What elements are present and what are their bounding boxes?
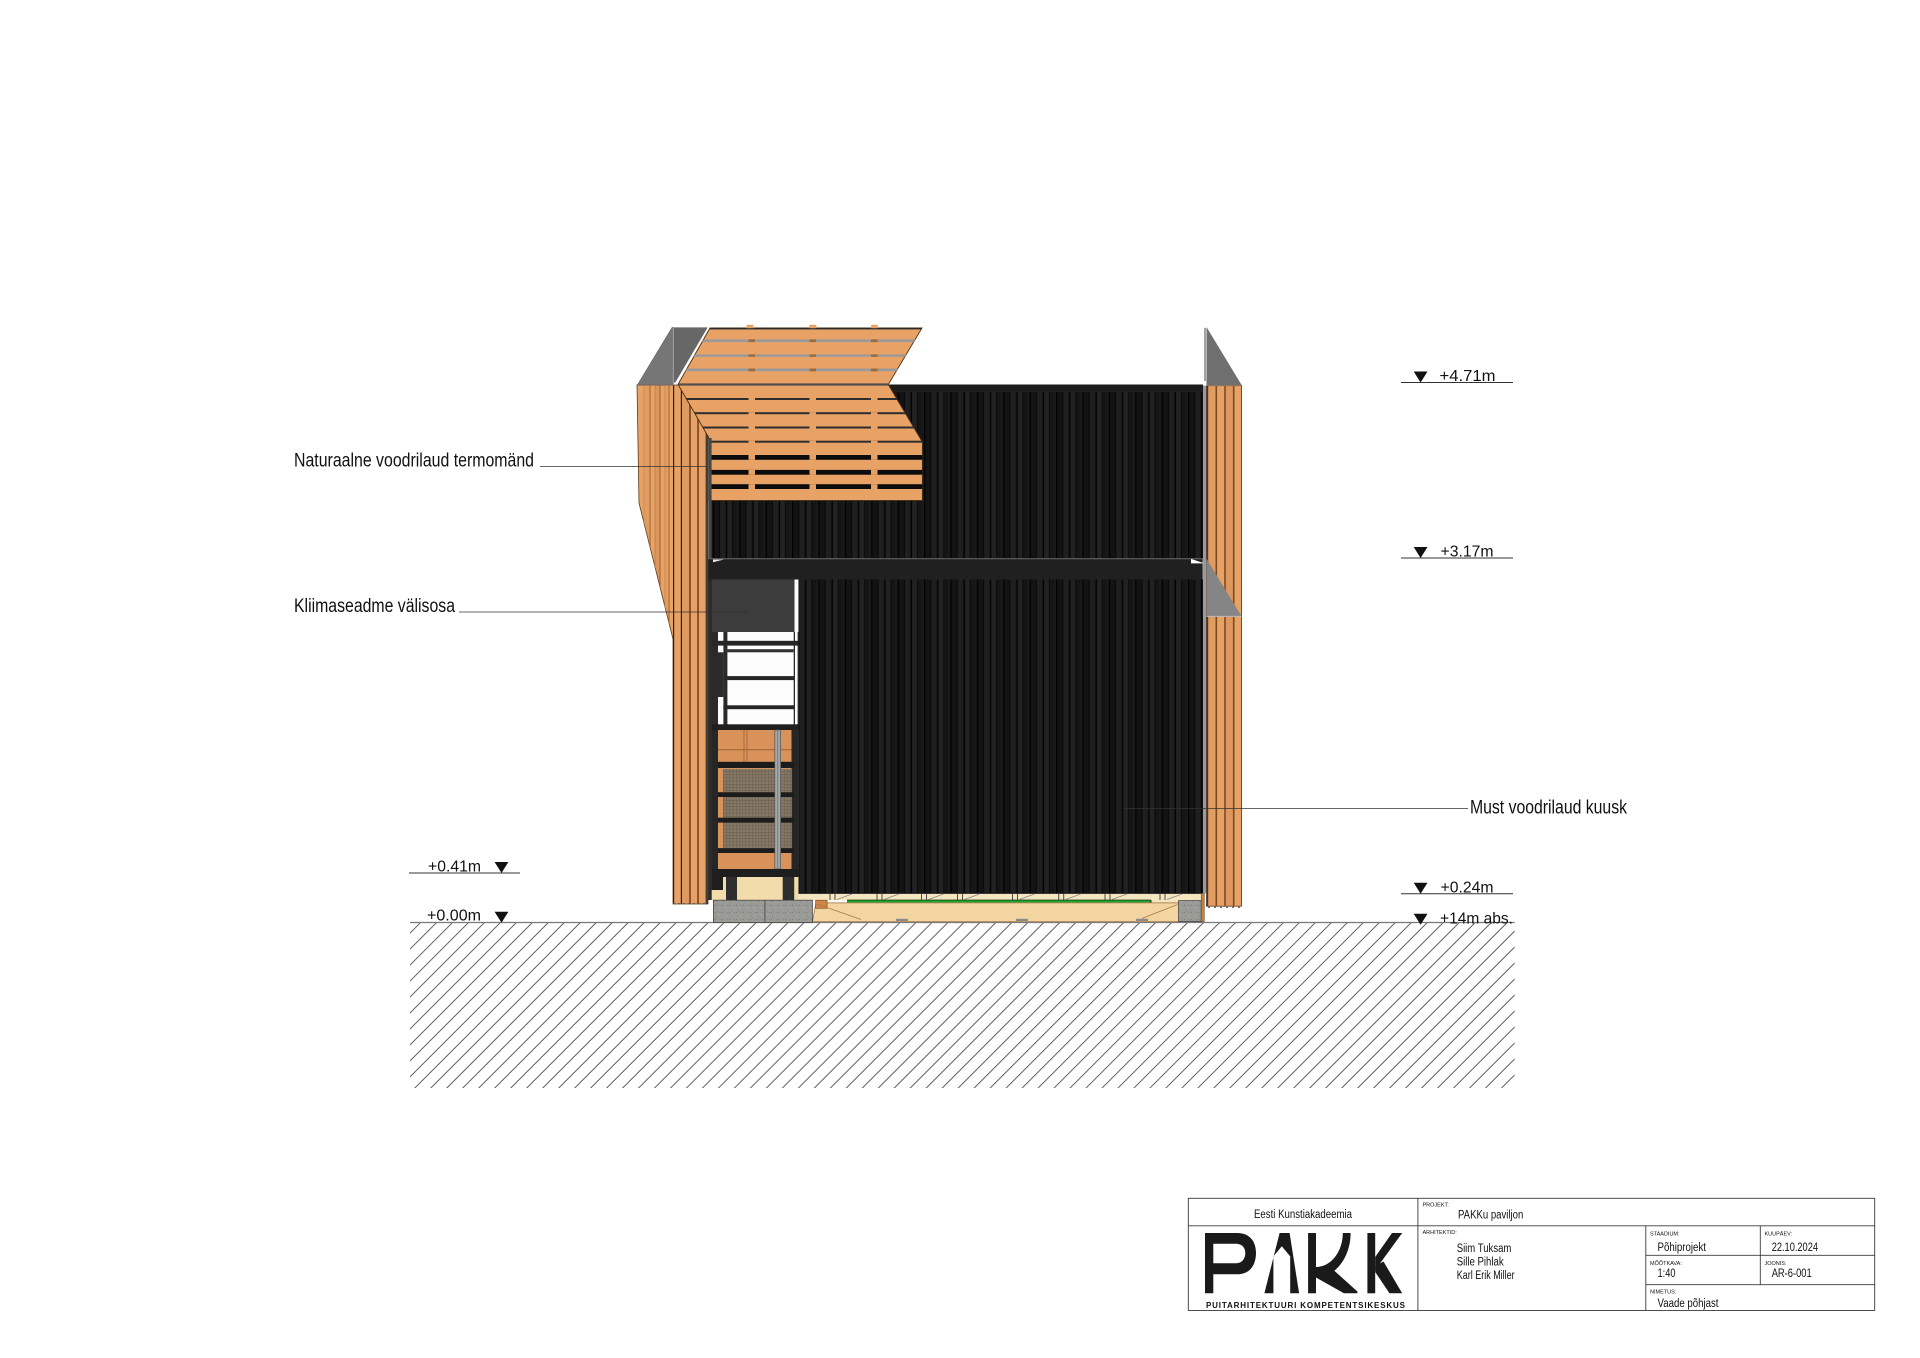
svg-text:ARHITEKTID:: ARHITEKTID: — [1423, 1230, 1458, 1236]
svg-text:Siim Tuksam: Siim Tuksam — [1457, 1243, 1512, 1255]
svg-text:Karl Erik Miller: Karl Erik Miller — [1457, 1270, 1515, 1282]
svg-text:Must voodrilaud kuusk: Must voodrilaud kuusk — [1470, 798, 1627, 819]
svg-text:PUITARHITEKTUURI KOMPETENTSIKE: PUITARHITEKTUURI KOMPETENTSIKESKUS — [1206, 1301, 1406, 1310]
svg-text:+3.17m: +3.17m — [1441, 544, 1494, 561]
svg-text:Naturaalne voodrilaud termomän: Naturaalne voodrilaud termomänd — [294, 451, 534, 472]
svg-text:PROJEKT:: PROJEKT: — [1423, 1203, 1450, 1209]
svg-text:+0.00m: +0.00m — [427, 908, 481, 925]
svg-text:Kliimaseadme välisosa: Kliimaseadme välisosa — [294, 596, 455, 617]
svg-text:22.10.2024: 22.10.2024 — [1772, 1242, 1819, 1254]
svg-text:Vaade põhjast: Vaade põhjast — [1658, 1298, 1720, 1310]
svg-text:MÕÕTKAVA:: MÕÕTKAVA: — [1650, 1260, 1682, 1267]
svg-text:+0.41m: +0.41m — [428, 859, 481, 876]
svg-text:PAKKu paviljon: PAKKu paviljon — [1458, 1210, 1523, 1222]
svg-text:Põhiprojekt: Põhiprojekt — [1658, 1242, 1707, 1254]
svg-text:STAADIUM:: STAADIUM: — [1650, 1232, 1680, 1238]
svg-text:NIMETUS:: NIMETUS: — [1650, 1290, 1677, 1296]
svg-text:1:40: 1:40 — [1658, 1268, 1676, 1280]
svg-text:+14m abs.: +14m abs. — [1440, 910, 1513, 927]
svg-text:JOONIS:: JOONIS: — [1765, 1261, 1787, 1267]
svg-text:Eesti Kunstiakadeemia: Eesti Kunstiakadeemia — [1254, 1209, 1353, 1221]
svg-text:Sille Pihlak: Sille Pihlak — [1457, 1257, 1504, 1269]
svg-text:+0.24m: +0.24m — [1441, 879, 1494, 896]
svg-text:KUUPÄEV:: KUUPÄEV: — [1765, 1231, 1793, 1238]
svg-text:+4.71m: +4.71m — [1440, 368, 1496, 385]
svg-text:AR-6-001: AR-6-001 — [1772, 1268, 1812, 1280]
